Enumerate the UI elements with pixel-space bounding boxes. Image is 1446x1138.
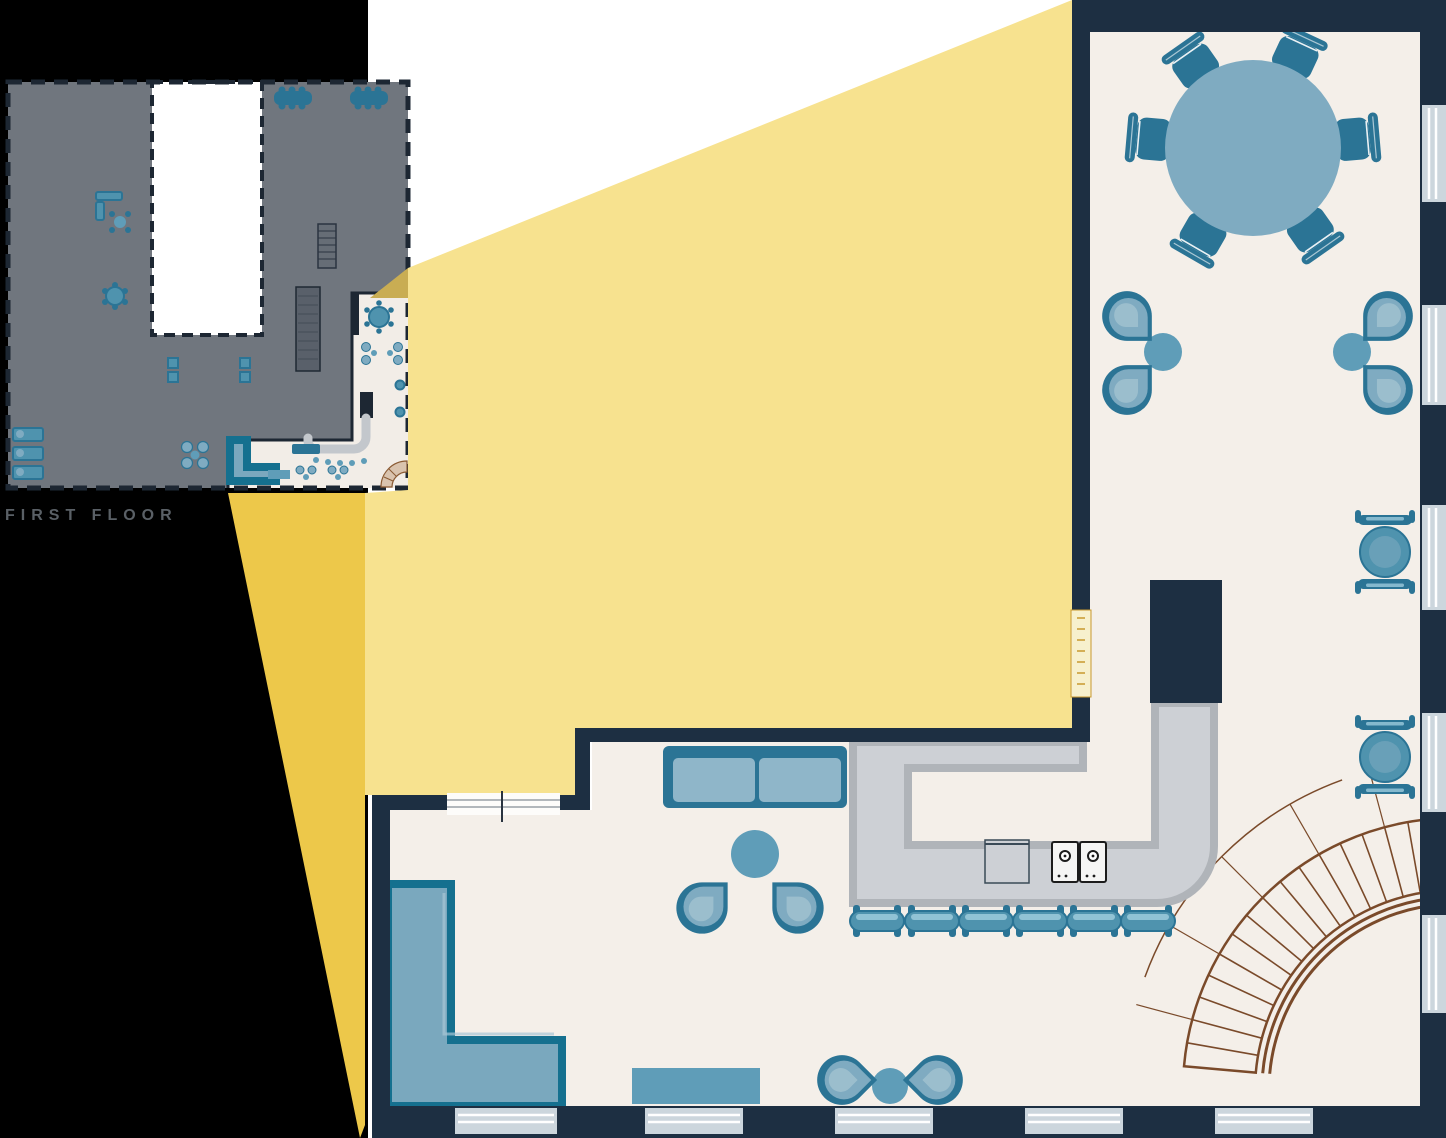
- wall-mid-horizontal: [575, 728, 1090, 742]
- window: [645, 1108, 743, 1134]
- mini-interior-wall-stub: [352, 293, 359, 335]
- loveseat-cushion: [673, 758, 755, 802]
- lounge-chair: [1363, 291, 1413, 341]
- column: [1150, 580, 1222, 703]
- window: [1422, 713, 1446, 812]
- mini-reception-desk: [296, 287, 320, 371]
- wall-left-lower: [372, 795, 390, 1138]
- floor-plan-illustration: FIRST FLOOR: [0, 0, 1446, 1138]
- plan-canvas: FIRST FLOOR: [0, 0, 1446, 1138]
- mini-loveseat: [292, 444, 320, 454]
- cooktop: [1080, 842, 1106, 882]
- armchair: [1355, 510, 1415, 594]
- mini-floor-plan: FIRST FLOOR: [5, 82, 408, 524]
- lounge-chair: [772, 882, 823, 933]
- side-table: [872, 1068, 908, 1104]
- window: [455, 1108, 557, 1134]
- round-dining-table: [1165, 60, 1341, 236]
- side-table: [731, 830, 779, 878]
- sink: [985, 840, 1029, 883]
- window: [835, 1108, 933, 1134]
- mini-armchair: [396, 381, 405, 390]
- mini-armchair: [396, 408, 405, 417]
- service-door: [1071, 610, 1091, 697]
- window: [1215, 1108, 1313, 1134]
- mini-courtyard: [152, 82, 262, 335]
- bench: [632, 1068, 760, 1104]
- mini-stairs: [318, 224, 336, 268]
- window: [1422, 105, 1446, 202]
- window: [1422, 305, 1446, 405]
- lounge-chair: [1102, 291, 1152, 341]
- dining-chair: [1124, 112, 1172, 166]
- wall-top: [1072, 0, 1446, 32]
- window: [1422, 505, 1446, 610]
- loveseat-cushion: [759, 758, 841, 802]
- lounge-chair: [1102, 365, 1152, 415]
- armchair: [1355, 715, 1415, 799]
- lounge-chair: [676, 882, 727, 933]
- mini-bench: [268, 470, 290, 479]
- window: [1025, 1108, 1123, 1134]
- lounge-chair: [1363, 365, 1413, 415]
- window: [1422, 915, 1446, 1013]
- first-floor-label: FIRST FLOOR: [5, 507, 178, 524]
- dining-chair: [1334, 112, 1382, 166]
- cooktop: [1052, 842, 1078, 882]
- mini-beds: [13, 428, 43, 479]
